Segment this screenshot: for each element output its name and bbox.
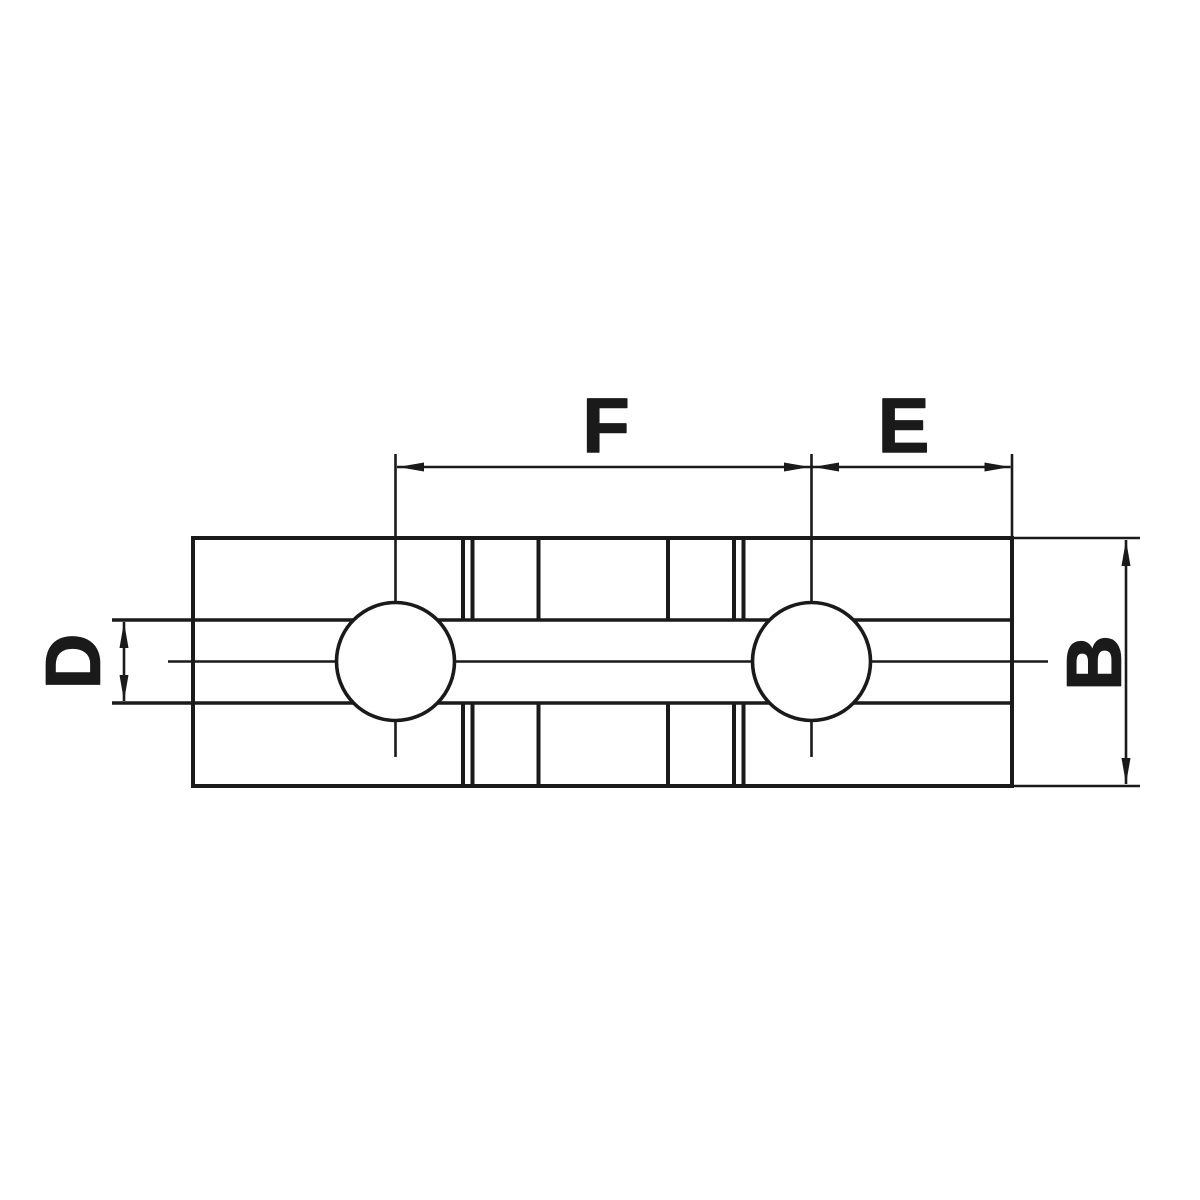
drawing-background xyxy=(0,0,1200,1200)
dimension-label-b: B xyxy=(1052,635,1138,691)
left-mounting-hole xyxy=(337,603,455,721)
dimension-label-e: E xyxy=(878,383,929,469)
right-mounting-hole xyxy=(753,603,871,721)
soft-jaw-technical-drawing: F E D B xyxy=(0,0,1200,1200)
technical-drawing-page: F E D B xyxy=(0,0,1200,1200)
dimension-label-f: F xyxy=(582,383,629,469)
dimension-label-d: D xyxy=(31,634,117,690)
